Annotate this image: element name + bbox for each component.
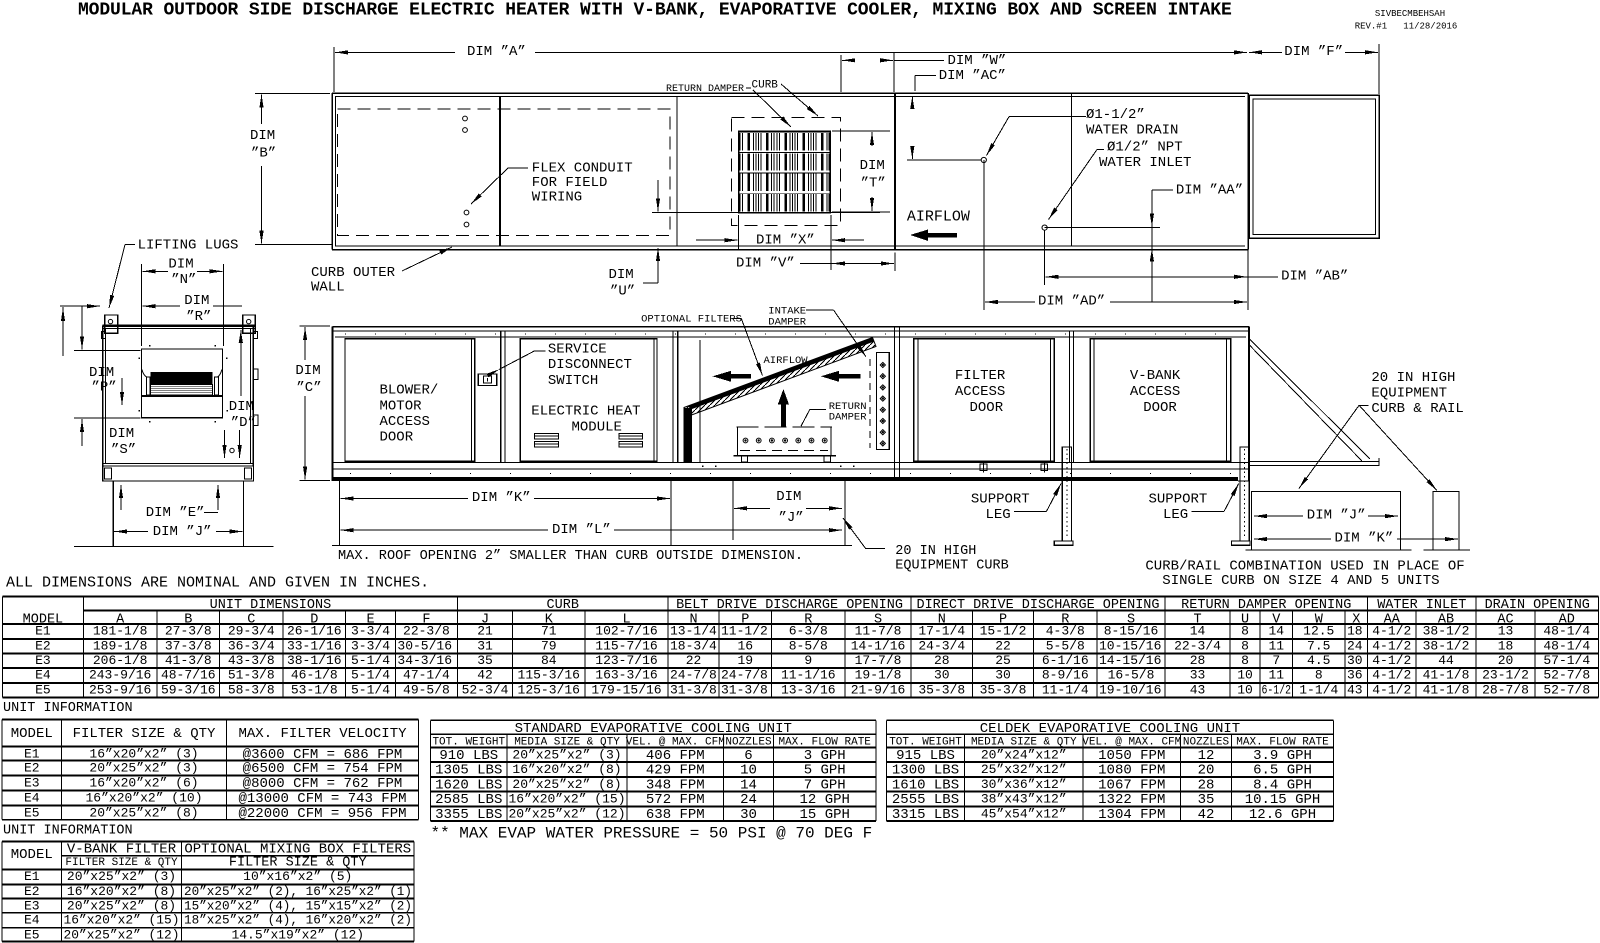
svg-text:8-9/16: 8-9/16 (1042, 668, 1089, 683)
svg-text:”U”: ”U” (610, 283, 635, 299)
svg-text:14.5”x19”x2” (12): 14.5”x19”x2” (12) (231, 927, 364, 942)
svg-text:11-7/8: 11-7/8 (855, 624, 902, 639)
svg-text:43: 43 (1347, 683, 1363, 698)
svg-text:5-1/4: 5-1/4 (351, 683, 390, 698)
svg-text:30: 30 (934, 668, 950, 683)
svg-text:20 IN HIGH: 20 IN HIGH (895, 544, 976, 559)
svg-text:58-3/8: 58-3/8 (228, 683, 275, 698)
svg-text:14: 14 (1268, 624, 1284, 639)
svg-text:34-3/16: 34-3/16 (397, 653, 452, 668)
svg-text:10: 10 (1237, 668, 1253, 683)
svg-text:4-1/2: 4-1/2 (1372, 639, 1411, 654)
svg-text:57-1/4: 57-1/4 (1543, 653, 1590, 668)
svg-text:30-5/16: 30-5/16 (397, 639, 452, 654)
svg-text:79: 79 (541, 639, 557, 654)
svg-text:189-1/8: 189-1/8 (93, 639, 148, 654)
svg-text:41-1/8: 41-1/8 (1423, 683, 1470, 698)
svg-text:31: 31 (477, 639, 493, 654)
svg-text:20”x25”x2” (3): 20”x25”x2” (3) (67, 869, 176, 884)
svg-text:RETURN DAMPER OPENING: RETURN DAMPER OPENING (1181, 598, 1351, 613)
svg-text:MAX. ROOF OPENING 2” SMALLER T: MAX. ROOF OPENING 2” SMALLER THAN CURB O… (338, 549, 803, 564)
svg-text:E2: E2 (35, 639, 51, 654)
svg-text:** MAX EVAP WATER PRESSURE = 5: ** MAX EVAP WATER PRESSURE = 50 PSI @ 70… (431, 824, 873, 842)
svg-text:30: 30 (740, 807, 757, 823)
svg-text:E1: E1 (24, 869, 40, 884)
svg-text:TOT. WEIGHT: TOT. WEIGHT (889, 737, 962, 749)
svg-text:E3: E3 (24, 776, 40, 791)
svg-text:UNIT INFORMATION: UNIT INFORMATION (3, 701, 133, 716)
svg-text:10”x16”x2” (5): 10”x16”x2” (5) (243, 869, 352, 884)
svg-text:E1: E1 (24, 746, 40, 761)
svg-text:”T”: ”T” (861, 176, 886, 192)
svg-text:20 IN HIGH: 20 IN HIGH (1371, 370, 1455, 386)
svg-text:14-1/16: 14-1/16 (851, 639, 906, 654)
svg-text:DOOR: DOOR (1143, 400, 1177, 416)
svg-text:41-1/8: 41-1/8 (1423, 668, 1470, 683)
svg-text:@22000 CFM = 956 FPM: @22000 CFM = 956 FPM (238, 806, 406, 822)
svg-text:E4: E4 (35, 668, 51, 683)
svg-text:20: 20 (1498, 653, 1514, 668)
svg-text:29-3/4: 29-3/4 (228, 624, 275, 639)
svg-text:MODULE: MODULE (572, 420, 622, 436)
svg-text:41-3/8: 41-3/8 (165, 653, 212, 668)
svg-text:E4: E4 (24, 791, 40, 806)
svg-text:LIFTING LUGS: LIFTING LUGS (138, 238, 239, 254)
svg-text:1304 FPM: 1304 FPM (1098, 807, 1165, 823)
svg-text:45”x54”x12”: 45”x54”x12” (981, 806, 1067, 821)
svg-text:102-7/16: 102-7/16 (595, 624, 657, 639)
svg-text:36: 36 (1347, 668, 1363, 683)
svg-text:DIM ”AA”: DIM ”AA” (1176, 182, 1243, 198)
svg-text:”N”: ”N” (171, 272, 196, 288)
svg-text:9: 9 (804, 653, 812, 668)
svg-text:47-1/4: 47-1/4 (403, 668, 450, 683)
svg-text:V-BANK: V-BANK (1130, 368, 1181, 384)
svg-text:48-7/16: 48-7/16 (161, 668, 216, 683)
svg-text:15”x20”x2” (4), 15”x15”x2” (2): 15”x20”x2” (4), 15”x15”x2” (2) (184, 898, 412, 913)
svg-text:UNIT DIMENSIONS: UNIT DIMENSIONS (210, 598, 332, 613)
svg-text:84: 84 (541, 653, 557, 668)
svg-text:10-15/16: 10-15/16 (1099, 639, 1161, 654)
svg-text:35: 35 (1198, 792, 1215, 808)
svg-text:DIM ”F”: DIM ”F” (1284, 44, 1343, 60)
svg-text:33: 33 (1190, 668, 1206, 683)
svg-text:DIM ”A”: DIM ”A” (467, 44, 526, 60)
svg-text:17-7/8: 17-7/8 (855, 653, 902, 668)
svg-text:Ø1-1/2”: Ø1-1/2” (1086, 107, 1145, 123)
svg-text:20: 20 (1198, 763, 1215, 779)
svg-text:MODULAR OUTDOOR SIDE DISCHARGE: MODULAR OUTDOOR SIDE DISCHARGE ELECTRIC … (78, 1, 1232, 21)
svg-text:MAX. FILTER VELOCITY: MAX. FILTER VELOCITY (238, 726, 407, 742)
svg-text:DIM ”K”: DIM ”K” (1335, 530, 1394, 546)
svg-text:Ø1/2” NPT: Ø1/2” NPT (1107, 140, 1183, 156)
svg-text:BELT DRIVE DISCHARGE OPENING: BELT DRIVE DISCHARGE OPENING (676, 598, 903, 613)
svg-text:12.6 GPH: 12.6 GPH (1249, 807, 1316, 823)
svg-text:DIM ”V”: DIM ”V” (736, 255, 795, 271)
svg-text:REV.#1 11/28/2016: REV.#1 11/28/2016 (1355, 22, 1458, 32)
svg-text:E5: E5 (24, 806, 40, 821)
svg-text:16”x20”x2” (15): 16”x20”x2” (15) (508, 791, 625, 806)
svg-text:16”x20”x2” (6): 16”x20”x2” (6) (89, 776, 198, 791)
svg-text:VEL. @ MAX. CFM: VEL. @ MAX. CFM (1082, 737, 1181, 749)
svg-text:8-5/8: 8-5/8 (789, 639, 828, 654)
svg-text:43-3/8: 43-3/8 (228, 653, 275, 668)
svg-text:18: 18 (1347, 624, 1363, 639)
svg-text:E1: E1 (35, 624, 51, 639)
svg-text:1080 FPM: 1080 FPM (1098, 763, 1165, 779)
svg-text:38-1/16: 38-1/16 (287, 653, 342, 668)
svg-text:@6500 CFM = 754 FPM: @6500 CFM = 754 FPM (243, 761, 403, 777)
svg-text:20”x25”x2” (8): 20”x25”x2” (8) (67, 898, 176, 913)
svg-text:11-1/4: 11-1/4 (1042, 683, 1089, 698)
svg-text:WIRING: WIRING (532, 189, 582, 205)
svg-text:14-15/16: 14-15/16 (1099, 653, 1161, 668)
svg-text:11: 11 (1268, 668, 1284, 683)
svg-text:DIM: DIM (609, 267, 634, 283)
svg-text:DIM ”AD”: DIM ”AD” (1038, 294, 1105, 310)
svg-text:SIVBECMBEHSAH: SIVBECMBEHSAH (1375, 9, 1445, 19)
svg-text:16”x20”x2” (8): 16”x20”x2” (8) (67, 884, 176, 899)
svg-text:STANDARD EVAPORATIVE COOLING U: STANDARD EVAPORATIVE COOLING UNIT (515, 721, 792, 737)
svg-text:59-3/16: 59-3/16 (161, 683, 216, 698)
svg-text:DIM: DIM (109, 426, 134, 442)
svg-text:36-3/4: 36-3/4 (228, 639, 275, 654)
svg-text:11-1/16: 11-1/16 (781, 668, 836, 683)
svg-text:30”x36”x12”: 30”x36”x12” (981, 777, 1067, 792)
svg-text:CELDEK EVAPORATIVE COOLING UNI: CELDEK EVAPORATIVE COOLING UNIT (980, 721, 1240, 737)
svg-text:@13000 CFM = 743 FPM: @13000 CFM = 743 FPM (238, 791, 406, 807)
svg-text:16”x20”x2” (3): 16”x20”x2” (3) (89, 746, 198, 761)
svg-text:20”x25”x2” (12): 20”x25”x2” (12) (64, 927, 180, 942)
svg-text:ACCESS: ACCESS (955, 384, 1005, 400)
svg-text:1300 LBS: 1300 LBS (892, 763, 959, 779)
svg-text:DIM ”J”: DIM ”J” (1307, 507, 1366, 523)
svg-text:V-BANK FILTER: V-BANK FILTER (67, 842, 177, 858)
svg-text:8: 8 (1315, 668, 1323, 683)
svg-text:20”x25”x2” (3): 20”x25”x2” (3) (512, 747, 621, 762)
svg-text:BLOWER/: BLOWER/ (380, 383, 439, 399)
svg-text:8: 8 (1241, 639, 1249, 654)
svg-text:179-15/16: 179-15/16 (591, 683, 661, 698)
svg-text:VEL. @ MAX. CFM: VEL. @ MAX. CFM (626, 737, 725, 749)
svg-text:E3: E3 (24, 898, 40, 913)
svg-text:2555 LBS: 2555 LBS (892, 792, 959, 808)
svg-text:DIM: DIM (860, 158, 885, 174)
svg-text:4-3/8: 4-3/8 (1046, 624, 1085, 639)
svg-text:46-1/8: 46-1/8 (291, 668, 338, 683)
svg-text:28: 28 (1190, 653, 1206, 668)
svg-text:253-9/16: 253-9/16 (89, 683, 151, 698)
svg-text:MODEL: MODEL (11, 847, 53, 863)
svg-text:10.15 GPH: 10.15 GPH (1245, 792, 1321, 808)
svg-text:DIM: DIM (168, 257, 193, 273)
svg-text:243-9/16: 243-9/16 (89, 668, 151, 683)
svg-text:20”x24”x12”: 20”x24”x12” (981, 747, 1067, 762)
svg-text:22-3/4: 22-3/4 (1174, 639, 1221, 654)
svg-text:21: 21 (477, 624, 493, 639)
svg-text:24-7/8: 24-7/8 (670, 668, 717, 683)
svg-text:MODEL: MODEL (11, 726, 53, 742)
svg-text:DIM ”J”: DIM ”J” (153, 524, 212, 540)
svg-text:”D”: ”D” (231, 415, 256, 431)
svg-text:ALL DIMENSIONS ARE NOMINAL AND: ALL DIMENSIONS ARE NOMINAL AND GIVEN IN … (6, 575, 429, 592)
svg-text:DIM ”X”: DIM ”X” (756, 232, 815, 248)
svg-text:16: 16 (737, 639, 753, 654)
svg-text:18: 18 (1498, 639, 1514, 654)
svg-text:”S”: ”S” (111, 442, 136, 458)
svg-text:SERVICE: SERVICE (548, 341, 607, 357)
svg-text:8: 8 (1241, 624, 1249, 639)
svg-text:SUPPORT: SUPPORT (971, 491, 1030, 507)
svg-text:DIM ”L”: DIM ”L” (552, 522, 611, 538)
svg-text:11-1/2: 11-1/2 (721, 624, 768, 639)
svg-text:WALL: WALL (311, 280, 345, 296)
svg-text:TOT. WEIGHT: TOT. WEIGHT (432, 737, 505, 749)
svg-text:E5: E5 (24, 927, 40, 942)
svg-text:20”x25”x2” (8): 20”x25”x2” (8) (512, 777, 621, 792)
svg-text:35-3/8: 35-3/8 (918, 683, 965, 698)
svg-text:18-3/4: 18-3/4 (670, 639, 717, 654)
svg-text:16”x20”x2” (15): 16”x20”x2” (15) (64, 912, 180, 927)
svg-text:12.5: 12.5 (1303, 624, 1334, 639)
svg-text:37-3/8: 37-3/8 (165, 639, 212, 654)
svg-text:33-1/16: 33-1/16 (287, 639, 342, 654)
svg-text:3315 LBS: 3315 LBS (892, 807, 959, 823)
svg-text:DIRECT DRIVE DISCHARGE OPENING: DIRECT DRIVE DISCHARGE OPENING (916, 598, 1159, 613)
svg-text:CURB/RAIL COMBINATION USED IN: CURB/RAIL COMBINATION USED IN PLACE OF (1145, 558, 1464, 574)
svg-text:52-7/8: 52-7/8 (1543, 668, 1590, 683)
svg-text:DISCONNECT: DISCONNECT (548, 357, 632, 373)
svg-text:SWITCH: SWITCH (548, 373, 598, 389)
svg-text:1-1/4: 1-1/4 (1299, 683, 1338, 698)
svg-text:”P”: ”P” (92, 379, 117, 395)
svg-text:MAX. FLOW RATE: MAX. FLOW RATE (778, 737, 871, 749)
svg-text:2585 LBS: 2585 LBS (435, 792, 502, 808)
svg-text:16”x20”x2” (8): 16”x20”x2” (8) (512, 762, 621, 777)
svg-text:30: 30 (995, 668, 1011, 683)
svg-text:CURB & RAIL: CURB & RAIL (1371, 401, 1463, 417)
svg-text:5-1/4: 5-1/4 (351, 653, 390, 668)
svg-text:WATER INLET: WATER INLET (1377, 598, 1466, 613)
svg-text:17-1/4: 17-1/4 (918, 624, 965, 639)
svg-text:DIM ”AC”: DIM ”AC” (939, 68, 1006, 84)
svg-text:49-5/8: 49-5/8 (403, 683, 450, 698)
svg-text:FILTER: FILTER (955, 368, 1006, 384)
svg-text:42: 42 (477, 668, 493, 683)
svg-text:DIM: DIM (184, 293, 209, 309)
svg-text:31-3/8: 31-3/8 (670, 683, 717, 698)
svg-text:123-7/16: 123-7/16 (595, 653, 657, 668)
svg-text:24: 24 (1347, 639, 1363, 654)
svg-text:15-1/2: 15-1/2 (980, 624, 1027, 639)
svg-text:WATER DRAIN: WATER DRAIN (1086, 123, 1178, 139)
svg-text:DIM: DIM (229, 399, 254, 415)
svg-text:5 GPH: 5 GPH (804, 763, 846, 779)
svg-text:4-1/2: 4-1/2 (1372, 668, 1411, 683)
svg-text:572 FPM: 572 FPM (646, 792, 705, 808)
svg-text:12 GPH: 12 GPH (799, 792, 849, 808)
svg-text:23-1/2: 23-1/2 (1482, 668, 1529, 683)
svg-text:115-3/16: 115-3/16 (518, 668, 580, 683)
svg-text:DRAIN OPENING: DRAIN OPENING (1485, 598, 1590, 613)
svg-text:5-1/4: 5-1/4 (351, 668, 390, 683)
svg-text:181-1/8: 181-1/8 (93, 624, 148, 639)
svg-text:48-1/4: 48-1/4 (1543, 639, 1590, 654)
svg-text:20”x25”x2” (2), 16”x25”x2” (1): 20”x25”x2” (2), 16”x25”x2” (1) (184, 884, 412, 899)
svg-text:53-1/8: 53-1/8 (291, 683, 338, 698)
svg-text:206-1/8: 206-1/8 (93, 653, 148, 668)
svg-text:125-3/16: 125-3/16 (518, 683, 580, 698)
svg-text:163-3/16: 163-3/16 (595, 668, 657, 683)
svg-text:DIM ”W”: DIM ”W” (948, 53, 1007, 69)
svg-text:638 FPM: 638 FPM (646, 807, 705, 823)
svg-text:20”x25”x2” (12): 20”x25”x2” (12) (508, 806, 625, 821)
svg-text:6-1/2: 6-1/2 (1262, 683, 1292, 698)
svg-text:38-1/2: 38-1/2 (1423, 639, 1470, 654)
svg-text:ELECTRIC HEAT: ELECTRIC HEAT (531, 404, 640, 420)
svg-text:7: 7 (1272, 653, 1280, 668)
svg-text:DOOR: DOOR (380, 430, 414, 446)
svg-text:UNIT INFORMATION: UNIT INFORMATION (3, 824, 133, 839)
svg-text:31-3/8: 31-3/8 (721, 683, 768, 698)
svg-text:429 FPM: 429 FPM (646, 763, 705, 779)
svg-text:SUPPORT: SUPPORT (1149, 491, 1208, 507)
svg-text:44: 44 (1438, 653, 1454, 668)
svg-text:8: 8 (1241, 653, 1249, 668)
svg-text:28-7/8: 28-7/8 (1482, 683, 1529, 698)
svg-text:21-9/16: 21-9/16 (851, 683, 906, 698)
svg-text:SINGLE CURB ON SIZE 4 AND 5 UN: SINGLE CURB ON SIZE 4 AND 5 UNITS (1162, 573, 1439, 589)
svg-text:AIRFLOW: AIRFLOW (764, 355, 809, 367)
svg-text:NOZZLES: NOZZLES (1183, 737, 1230, 749)
svg-text:1305 LBS: 1305 LBS (435, 763, 502, 779)
svg-text:22-3/8: 22-3/8 (403, 624, 450, 639)
svg-text:ACCESS: ACCESS (380, 414, 430, 430)
svg-text:E2: E2 (24, 761, 40, 776)
svg-text:OPTIONAL FILTERS: OPTIONAL FILTERS (641, 313, 742, 325)
svg-text:EQUIPMENT: EQUIPMENT (1371, 385, 1447, 401)
svg-text:4-1/2: 4-1/2 (1372, 683, 1411, 698)
svg-text:19: 19 (737, 653, 753, 668)
svg-text:6-1/16: 6-1/16 (1042, 653, 1089, 668)
svg-text:48-1/4: 48-1/4 (1543, 624, 1590, 639)
svg-text:19-1/8: 19-1/8 (855, 668, 902, 683)
svg-text:”J”: ”J” (779, 510, 804, 526)
svg-text:38”x43”x12”: 38”x43”x12” (981, 791, 1067, 806)
svg-text:1322 FPM: 1322 FPM (1098, 792, 1165, 808)
svg-text:16-5/8: 16-5/8 (1108, 668, 1155, 683)
svg-text:24-3/4: 24-3/4 (918, 639, 965, 654)
svg-text:16”x20”x2” (10): 16”x20”x2” (10) (85, 791, 202, 806)
svg-text:13: 13 (1498, 624, 1514, 639)
svg-text:27-3/8: 27-3/8 (165, 624, 212, 639)
svg-text:13-3/16: 13-3/16 (781, 683, 836, 698)
svg-text:26-1/16: 26-1/16 (287, 624, 342, 639)
svg-text:35-3/8: 35-3/8 (980, 683, 1027, 698)
svg-text:E5: E5 (35, 683, 51, 698)
svg-text:DIM ”E”: DIM ”E” (146, 505, 205, 521)
svg-text:10: 10 (740, 763, 757, 779)
svg-text:43: 43 (1190, 683, 1206, 698)
svg-text:13-1/4: 13-1/4 (670, 624, 717, 639)
svg-text:DAMPER: DAMPER (768, 317, 807, 329)
svg-text:51-3/8: 51-3/8 (228, 668, 275, 683)
svg-text:10: 10 (1237, 683, 1253, 698)
svg-text:14: 14 (1190, 624, 1206, 639)
svg-text:4-1/2: 4-1/2 (1372, 653, 1411, 668)
svg-text:115-7/16: 115-7/16 (595, 639, 657, 654)
svg-text:”R”: ”R” (186, 309, 211, 325)
svg-text:DIM: DIM (250, 128, 275, 144)
svg-text:DIM ”K”: DIM ”K” (472, 490, 531, 506)
svg-text:6-3/8: 6-3/8 (789, 624, 828, 639)
svg-text:”B”: ”B” (251, 145, 276, 161)
svg-text:52-7/8: 52-7/8 (1543, 683, 1590, 698)
svg-text:FILTER SIZE & QTY: FILTER SIZE & QTY (73, 726, 216, 742)
svg-text:E2: E2 (24, 884, 40, 899)
svg-text:CURB: CURB (752, 79, 779, 91)
svg-text:28: 28 (934, 653, 950, 668)
svg-text:MAX. FLOW RATE: MAX. FLOW RATE (1236, 737, 1329, 749)
svg-text:71: 71 (541, 624, 557, 639)
svg-text:38-1/2: 38-1/2 (1423, 624, 1470, 639)
svg-text:18”x25”x2” (4), 16”x20”x2” (2): 18”x25”x2” (4), 16”x20”x2” (2) (184, 912, 412, 927)
svg-text:24: 24 (740, 792, 757, 808)
svg-text:3-3/4: 3-3/4 (351, 639, 390, 654)
svg-text:MOTOR: MOTOR (380, 398, 423, 414)
svg-text:6.5 GPH: 6.5 GPH (1253, 763, 1312, 779)
svg-text:DOOR: DOOR (970, 400, 1004, 416)
svg-text:4-1/2: 4-1/2 (1372, 624, 1411, 639)
svg-text:WATER INLET: WATER INLET (1099, 155, 1191, 171)
svg-text:FILTER SIZE & QTY: FILTER SIZE & QTY (65, 857, 178, 869)
svg-text:22: 22 (686, 653, 702, 668)
svg-text:25: 25 (995, 653, 1011, 668)
svg-text:35: 35 (477, 653, 493, 668)
svg-text:42: 42 (1198, 807, 1215, 823)
svg-text:”C”: ”C” (296, 380, 321, 396)
svg-text:20”x25”x2” (3): 20”x25”x2” (3) (89, 761, 198, 776)
svg-text:E4: E4 (24, 912, 40, 927)
svg-text:LEG: LEG (986, 507, 1011, 523)
svg-text:19-10/16: 19-10/16 (1099, 683, 1161, 698)
svg-text:ACCESS: ACCESS (1130, 384, 1180, 400)
svg-text:4.5: 4.5 (1307, 653, 1330, 668)
svg-text:LEG: LEG (1163, 507, 1188, 523)
svg-text:DIM ”AB”: DIM ”AB” (1281, 268, 1348, 284)
svg-text:EQUIPMENT CURB: EQUIPMENT CURB (895, 559, 1008, 574)
svg-text:NOZZLES: NOZZLES (725, 737, 772, 749)
svg-text:11: 11 (1268, 639, 1284, 654)
svg-text:52-3/4: 52-3/4 (462, 683, 509, 698)
svg-text:30: 30 (1347, 653, 1363, 668)
svg-text:20”x25”x2” (8): 20”x25”x2” (8) (89, 806, 198, 821)
svg-text:E3: E3 (35, 653, 51, 668)
svg-text:3355 LBS: 3355 LBS (435, 807, 502, 823)
svg-text:@8000 CFM = 762 FPM: @8000 CFM = 762 FPM (243, 776, 403, 792)
svg-text:22: 22 (995, 639, 1011, 654)
svg-text:3-3/4: 3-3/4 (351, 624, 390, 639)
svg-text:8-15/16: 8-15/16 (1104, 624, 1159, 639)
svg-text:5-5/8: 5-5/8 (1046, 639, 1085, 654)
svg-text:RETURN DAMPER: RETURN DAMPER (666, 84, 744, 95)
svg-text:CURB: CURB (547, 598, 579, 613)
svg-text:DAMPER: DAMPER (829, 412, 868, 424)
svg-text:DIM: DIM (776, 489, 801, 505)
svg-text:AIRFLOW: AIRFLOW (907, 209, 970, 226)
svg-text:24-7/8: 24-7/8 (721, 668, 768, 683)
svg-text:7.5: 7.5 (1307, 639, 1330, 654)
